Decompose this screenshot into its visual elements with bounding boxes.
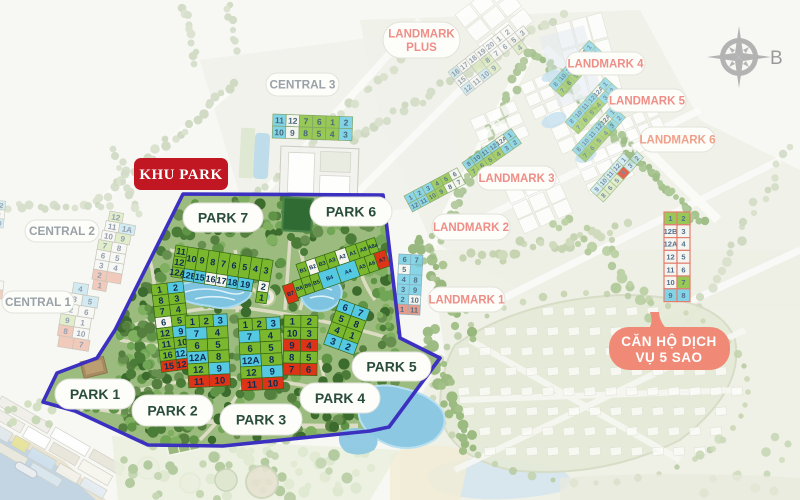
svg-text:LANDMARK 6: LANDMARK 6	[639, 135, 715, 147]
svg-text:19: 19	[239, 279, 250, 290]
svg-text:10: 10	[214, 375, 225, 387]
svg-text:3: 3	[270, 318, 276, 329]
svg-text:1: 1	[400, 305, 405, 314]
svg-text:12A: 12A	[189, 352, 207, 364]
svg-text:B: B	[770, 48, 783, 69]
svg-text:CENTRAL 3: CENTRAL 3	[270, 78, 336, 92]
svg-text:7: 7	[303, 116, 308, 126]
svg-text:12: 12	[246, 368, 257, 380]
svg-text:12: 12	[159, 328, 170, 339]
svg-text:KHU PARK: KHU PARK	[139, 167, 222, 183]
svg-text:LANDMARK 4: LANDMARK 4	[567, 59, 644, 71]
svg-text:PARK 2: PARK 2	[147, 403, 198, 419]
svg-text:17: 17	[216, 275, 227, 286]
svg-text:7: 7	[289, 364, 294, 375]
svg-text:5: 5	[681, 253, 685, 262]
svg-text:8: 8	[413, 276, 418, 285]
svg-text:CENTRAL 1: CENTRAL 1	[5, 295, 71, 309]
svg-text:5: 5	[316, 129, 321, 139]
svg-text:11: 11	[275, 115, 285, 125]
svg-text:7: 7	[681, 278, 685, 287]
svg-text:12: 12	[193, 365, 204, 377]
svg-text:4: 4	[306, 341, 312, 352]
svg-text:10: 10	[186, 253, 197, 264]
svg-text:LANDMARK 1: LANDMARK 1	[428, 295, 505, 307]
svg-text:11: 11	[176, 246, 187, 257]
svg-text:6: 6	[681, 265, 685, 274]
svg-text:12: 12	[666, 253, 674, 262]
svg-text:8: 8	[216, 352, 222, 363]
svg-text:9: 9	[413, 285, 418, 294]
svg-text:2: 2	[343, 118, 348, 128]
svg-text:9: 9	[216, 364, 222, 375]
svg-text:1: 1	[330, 117, 335, 127]
svg-text:9: 9	[269, 367, 275, 378]
svg-text:PLUS: PLUS	[406, 42, 437, 54]
svg-text:PARK 7: PARK 7	[198, 210, 249, 226]
svg-text:PARK 1: PARK 1	[70, 386, 121, 402]
svg-text:12A: 12A	[242, 355, 260, 367]
svg-text:VỤ 5 SAO: VỤ 5 SAO	[635, 350, 702, 365]
svg-text:16: 16	[205, 273, 216, 284]
svg-text:9: 9	[290, 128, 295, 138]
svg-text:11: 11	[161, 339, 172, 350]
svg-text:11: 11	[194, 376, 205, 388]
svg-text:LANDMARK 2: LANDMARK 2	[433, 222, 509, 234]
svg-text:PARK 3: PARK 3	[236, 412, 287, 428]
svg-text:PARK 4: PARK 4	[315, 390, 366, 406]
svg-text:6: 6	[402, 255, 407, 264]
svg-text:12: 12	[288, 116, 298, 126]
svg-text:11: 11	[667, 265, 675, 274]
svg-text:1: 1	[290, 317, 296, 328]
svg-text:1: 1	[668, 214, 672, 223]
svg-text:5: 5	[306, 353, 312, 364]
svg-text:9: 9	[289, 340, 294, 351]
svg-text:8: 8	[681, 291, 685, 300]
svg-text:6: 6	[306, 365, 311, 376]
svg-text:3: 3	[401, 285, 406, 294]
svg-text:PARK 6: PARK 6	[326, 204, 377, 220]
svg-text:3: 3	[681, 227, 685, 236]
svg-text:LANDMARK 3: LANDMARK 3	[478, 173, 554, 185]
svg-text:4: 4	[330, 129, 335, 139]
svg-text:5: 5	[402, 265, 407, 274]
svg-text:10: 10	[410, 295, 419, 304]
svg-text:10: 10	[267, 378, 278, 390]
svg-text:10: 10	[287, 328, 298, 339]
svg-text:2: 2	[400, 295, 405, 304]
svg-text:18: 18	[227, 277, 238, 288]
svg-text:6: 6	[247, 344, 253, 355]
svg-text:2: 2	[307, 317, 312, 328]
svg-text:10: 10	[274, 127, 284, 137]
svg-text:8: 8	[269, 355, 275, 366]
svg-text:CĂN HỘ DỊCH: CĂN HỘ DỊCH	[621, 334, 717, 349]
svg-text:3: 3	[306, 329, 311, 340]
svg-text:7: 7	[414, 256, 419, 265]
svg-text:PARK 5: PARK 5	[366, 359, 417, 375]
svg-text:2: 2	[256, 319, 262, 330]
svg-text:15: 15	[163, 361, 174, 372]
svg-text:11: 11	[410, 305, 418, 314]
svg-text:16: 16	[162, 350, 173, 361]
svg-text:6: 6	[317, 117, 322, 127]
svg-text:LANDMARK 5: LANDMARK 5	[609, 96, 686, 108]
svg-text:6: 6	[194, 341, 200, 352]
svg-text:11: 11	[247, 379, 258, 391]
svg-text:2: 2	[681, 214, 685, 223]
svg-text:9: 9	[668, 291, 672, 300]
svg-text:7: 7	[194, 329, 200, 340]
svg-text:3: 3	[343, 130, 348, 140]
svg-text:7: 7	[247, 332, 253, 343]
svg-text:8: 8	[303, 128, 308, 138]
svg-text:LANDMARK: LANDMARK	[388, 28, 455, 40]
svg-text:8: 8	[289, 352, 294, 363]
svg-text:CENTRAL 2: CENTRAL 2	[29, 224, 95, 238]
svg-text:12A: 12A	[664, 240, 678, 249]
svg-text:10: 10	[666, 278, 674, 287]
svg-text:15: 15	[194, 272, 205, 283]
svg-text:3: 3	[217, 315, 223, 326]
svg-text:2: 2	[203, 316, 209, 327]
svg-text:12B: 12B	[664, 227, 678, 236]
